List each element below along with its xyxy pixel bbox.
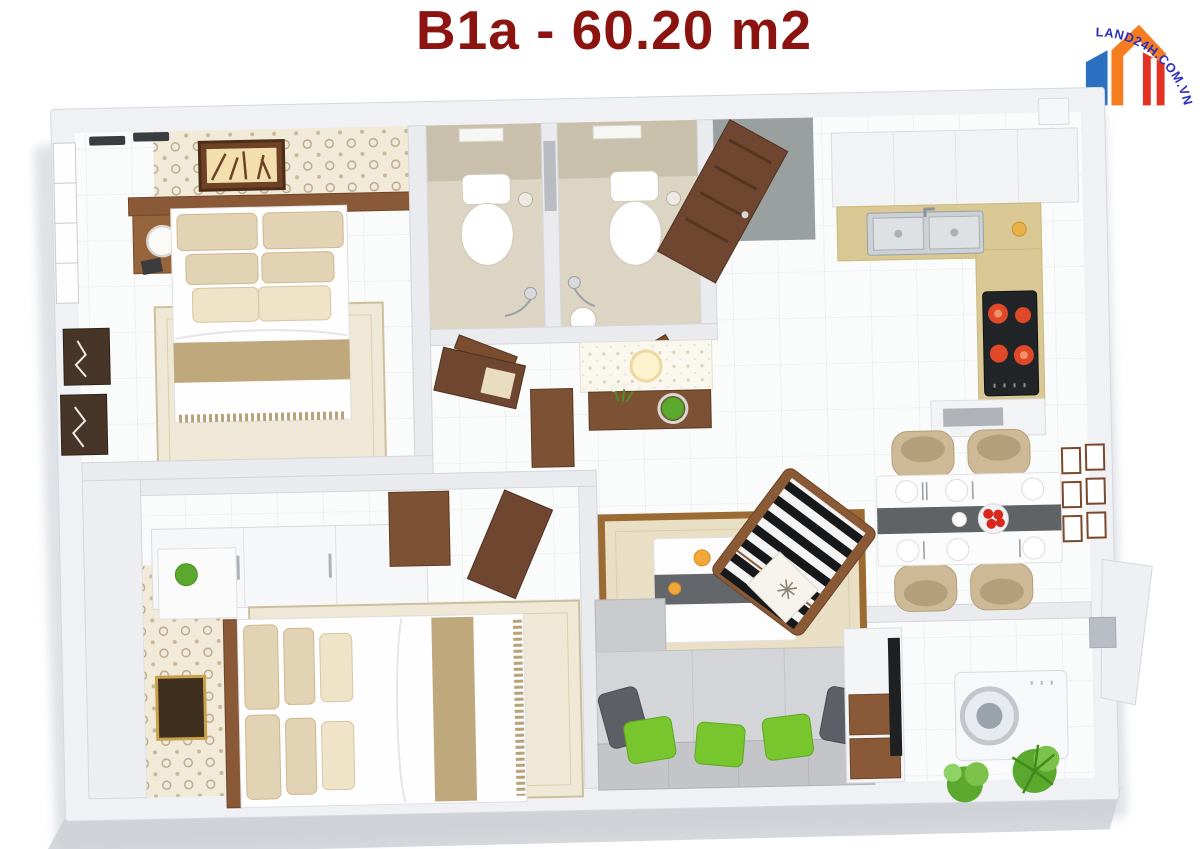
desk-shelf — [158, 548, 237, 620]
jar-item — [1012, 222, 1026, 236]
vent-panel — [593, 125, 641, 139]
toilet-bowl — [609, 201, 662, 266]
bed-pillow — [285, 718, 317, 795]
tv-cabinet — [844, 628, 905, 783]
ac-ledge-box — [1039, 98, 1070, 125]
place-plate — [947, 538, 969, 560]
bathroom-1 — [426, 123, 545, 329]
wall-art-frame — [63, 328, 110, 385]
sofa-pillow-green — [623, 715, 677, 764]
bed-throw-band — [173, 339, 350, 383]
place-plate — [945, 479, 967, 501]
bedroom-2 — [141, 488, 583, 809]
floor-plan-rendering — [0, 0, 1200, 849]
bed-pillow — [245, 715, 281, 800]
sofa-chaise — [595, 599, 666, 658]
napkin — [952, 512, 966, 526]
shower-head-icon — [568, 276, 580, 288]
wall-panel-gray — [543, 141, 556, 211]
floor-plan-page: B1a - 60.20 m2 LAND24H.COM.VN — [0, 0, 1200, 849]
bed-pillow — [186, 253, 259, 285]
gallery-frame — [1063, 482, 1082, 507]
hall-cabinet — [531, 389, 575, 468]
vent-panel — [459, 128, 503, 142]
ceiling-vent-icon — [133, 132, 169, 142]
gallery-frame — [1087, 478, 1106, 503]
potted-plant — [175, 563, 197, 585]
bed-pillow — [243, 625, 279, 710]
bed-throw-band — [431, 617, 477, 802]
gallery-frame — [1062, 448, 1081, 473]
shower-head-icon — [524, 287, 536, 299]
bed-pillow — [263, 211, 344, 249]
toilet-tank — [610, 171, 659, 202]
place-plate — [896, 480, 918, 502]
wall-niche — [1089, 617, 1116, 648]
table-runner — [877, 504, 1062, 534]
sofa-pillow-green — [694, 722, 745, 768]
bed-pillow — [177, 213, 258, 251]
gallery-frame — [1063, 516, 1082, 541]
bed-pillow — [262, 252, 335, 284]
ceiling-vent-icon — [89, 136, 125, 146]
toilet-paper-holder — [518, 192, 532, 206]
tall-wood-cabinet — [389, 491, 451, 566]
snack-dish — [669, 582, 681, 594]
wall-picture-frame — [156, 676, 205, 739]
sofa-pillow-green — [761, 713, 814, 761]
gallery-frame — [1087, 512, 1106, 537]
gallery-frame — [1086, 444, 1105, 469]
bed-pillow — [258, 286, 331, 322]
place-plate — [1021, 478, 1043, 500]
console-table — [589, 390, 712, 431]
entry-console — [580, 340, 714, 431]
snack-dish — [694, 550, 710, 566]
bed-pillow — [283, 628, 315, 705]
toilet-paper-holder — [666, 191, 680, 205]
ceiling-light — [631, 351, 662, 382]
bed-pillow — [321, 721, 354, 790]
bed-pillow — [320, 633, 353, 702]
tv-screen — [888, 638, 902, 756]
bed-pillow — [192, 287, 259, 322]
toilet-bowl — [461, 203, 514, 266]
oven-slot — [943, 408, 1003, 427]
succulent-plant — [662, 397, 684, 419]
master-wall-art-backlight — [206, 148, 277, 183]
place-plate — [1023, 537, 1045, 559]
place-plate — [897, 539, 919, 561]
apartment-plan — [29, 87, 1158, 849]
wall-segment — [82, 480, 147, 799]
fruit-bowl — [978, 503, 1009, 534]
toilet-tank — [462, 174, 511, 205]
